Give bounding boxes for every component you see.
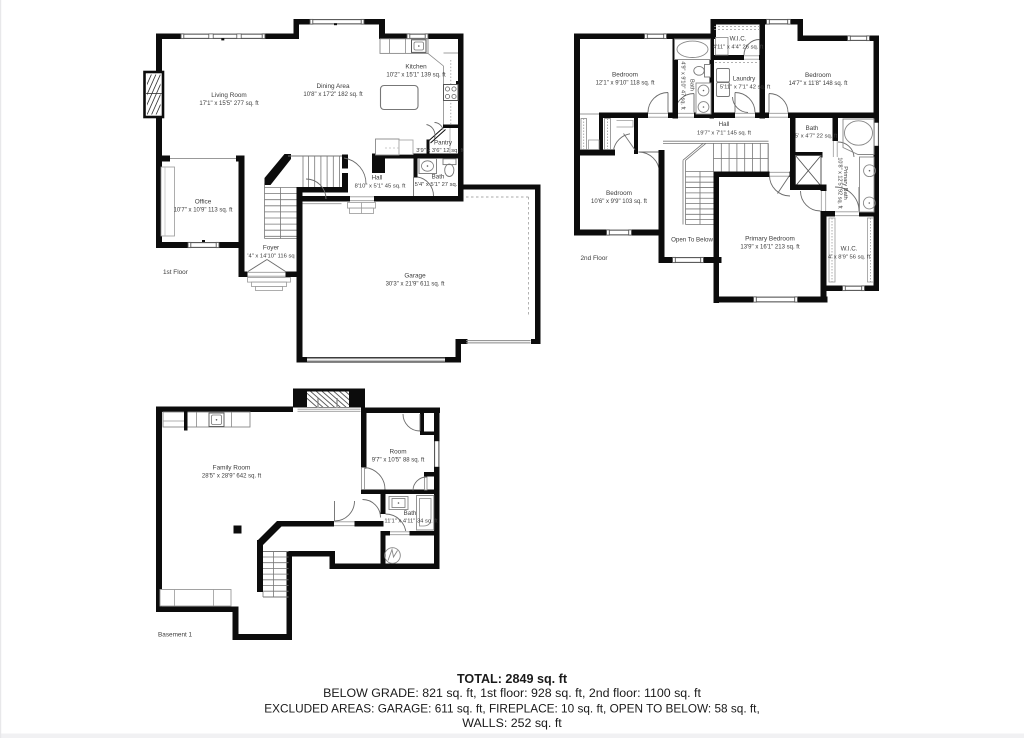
svg-text:10'7" x 10'9" 113 sq. ft: 10'7" x 10'9" 113 sq. ft [174, 208, 233, 214]
svg-text:10'8" x 17'2" 182 sq. ft: 10'8" x 17'2" 182 sq. ft [303, 92, 363, 98]
svg-text:Pantry: Pantry [434, 140, 453, 147]
svg-text:12'1" x 9'10" 118 sq. ft: 12'1" x 9'10" 118 sq. ft [596, 81, 655, 87]
svg-text:1st Floor: 1st Floor [163, 269, 189, 276]
svg-text:Basement 1: Basement 1 [158, 632, 193, 639]
svg-text:Family Room: Family Room [213, 465, 251, 472]
svg-text:Open To Below: Open To Below [671, 237, 713, 244]
svg-text:Garage: Garage [404, 273, 426, 280]
svg-text:Living Room: Living Room [211, 92, 247, 99]
svg-text:Bath: Bath [404, 510, 417, 517]
svg-text:8'10" x 5'1" 45 sq. ft: 8'10" x 5'1" 45 sq. ft [355, 184, 406, 190]
svg-text:Bedroom: Bedroom [606, 190, 632, 197]
svg-text:5'4" x 5'1" 27 sq.: 5'4" x 5'1" 27 sq. [415, 182, 458, 188]
svg-text:4' x 8'9" 56 sq. ft: 4' x 8'9" 56 sq. ft [828, 255, 871, 261]
svg-text:Dining Area: Dining Area [316, 83, 349, 90]
svg-text:10'6" x 9'9" 103 sq. ft: 10'6" x 9'9" 103 sq. ft [591, 199, 647, 205]
svg-text:Hall: Hall [372, 175, 383, 182]
svg-text:Bedroom: Bedroom [805, 72, 831, 79]
svg-text:10'2" x 15'1" 139 sq. ft: 10'2" x 15'1" 139 sq. ft [386, 73, 446, 79]
svg-text:30'3" x 21'9" 611 sq. ft: 30'3" x 21'9" 611 sq. ft [386, 282, 445, 288]
svg-text:WALLS: 252 sq. ft: WALLS: 252 sq. ft [462, 716, 562, 730]
svg-text:11'1" x 4'11" 34 sq. ft: 11'1" x 4'11" 34 sq. ft [384, 519, 438, 525]
svg-text:Bedroom: Bedroom [612, 72, 638, 79]
svg-text:14'7" x 11'8" 148 sq. ft: 14'7" x 11'8" 148 sq. ft [789, 81, 848, 87]
svg-text:13'9" x 16'1" 213 sq. ft: 13'9" x 16'1" 213 sq. ft [740, 245, 800, 251]
svg-text:EXCLUDED AREAS: GARAGE: 611 sq: EXCLUDED AREAS: GARAGE: 611 sq. ft, FIRE… [264, 701, 759, 715]
svg-text:Room: Room [389, 449, 406, 456]
svg-text:W.I.C.: W.I.C. [841, 246, 858, 253]
svg-text:10'8" x 12'5" 92 sq. ft: 10'8" x 12'5" 92 sq. ft [837, 157, 843, 209]
svg-text:5' x 4'7" 22 sq. ft: 5' x 4'7" 22 sq. ft [795, 134, 838, 140]
svg-text:5'11" x 7'1" 42 sq. ft: 5'11" x 7'1" 42 sq. ft [720, 85, 771, 91]
svg-text:Bath: Bath [689, 79, 695, 91]
svg-text:Hall: Hall [719, 121, 730, 128]
svg-text:3'9" x 3'6" 12 sq. ft: 3'9" x 3'6" 12 sq. ft [416, 148, 464, 154]
svg-text:4'9" x 9'10" 47 sq. ft: 4'9" x 9'10" 47 sq. ft [680, 61, 686, 110]
svg-text:Foyer: Foyer [263, 245, 280, 252]
svg-text:Primary Bedroom: Primary Bedroom [745, 236, 795, 243]
svg-text:4'11" x 4'4" 26 sq. ft: 4'11" x 4'4" 26 sq. ft [713, 45, 764, 51]
svg-text:Kitchen: Kitchen [405, 64, 427, 71]
svg-text:TOTAL: 2849 sq. ft: TOTAL: 2849 sq. ft [457, 672, 568, 686]
svg-text:W.I.C.: W.I.C. [730, 36, 747, 43]
svg-text:Office: Office [195, 199, 212, 206]
svg-text:Laundry: Laundry [733, 76, 756, 83]
svg-text:'4" x 14'10" 116 sq: '4" x 14'10" 116 sq [247, 254, 294, 260]
svg-text:Bath: Bath [806, 125, 819, 132]
svg-text:2nd Floor: 2nd Floor [581, 255, 609, 262]
svg-text:BELOW GRADE: 821 sq. ft, 1st f: BELOW GRADE: 821 sq. ft, 1st floor: 928 … [323, 686, 701, 700]
svg-text:17'1" x 15'5" 277 sq. ft: 17'1" x 15'5" 277 sq. ft [199, 101, 259, 107]
svg-text:Bath: Bath [432, 174, 445, 181]
svg-text:28'5" x 28'9" 642 sq. ft: 28'5" x 28'9" 642 sq. ft [202, 474, 262, 480]
svg-text:9'7" x 10'5" 88 sq. ft: 9'7" x 10'5" 88 sq. ft [372, 458, 425, 464]
svg-text:19'7" x 7'1" 145 sq. ft: 19'7" x 7'1" 145 sq. ft [697, 131, 751, 137]
